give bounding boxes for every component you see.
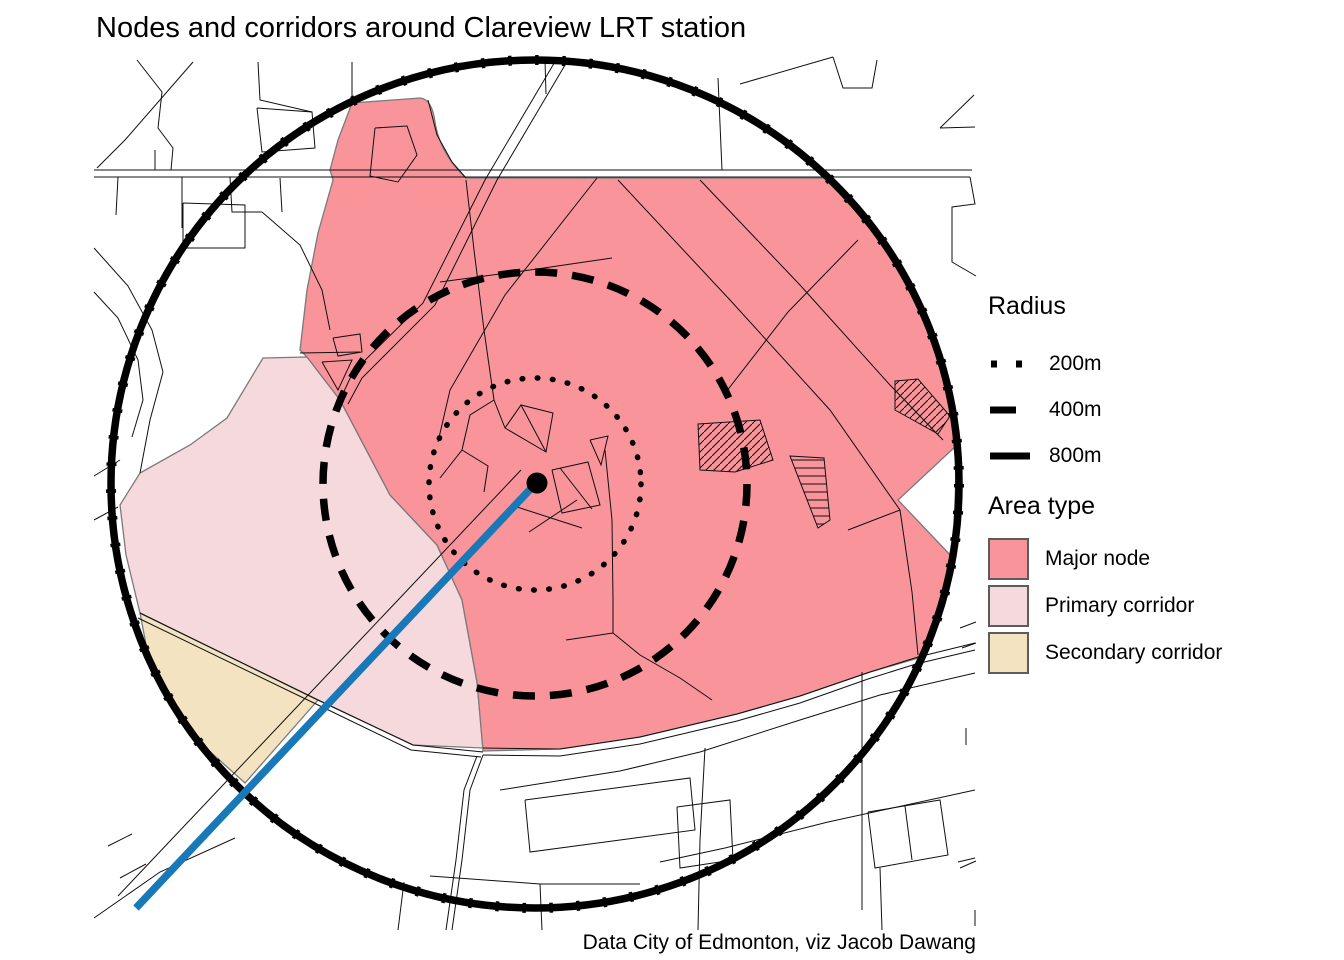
data-credit-caption: Data City of Edmonton, viz Jacob Dawang (583, 931, 976, 955)
legend-label-major-node: Major node (1045, 547, 1150, 571)
dashed-line-icon (988, 404, 1034, 416)
legend-label-800m: 800m (1049, 444, 1102, 468)
legend-label-400m: 400m (1049, 398, 1102, 422)
map-canvas (0, 0, 1344, 960)
page-title: Nodes and corridors around Clareview LRT… (96, 12, 746, 45)
legend-label-200m: 200m (1049, 352, 1102, 376)
dotted-line-icon (988, 358, 1034, 370)
legend-radius: Radius 200m 400m 800m (988, 292, 1102, 479)
legend-item-400m: 400m (988, 387, 1102, 433)
legend-radius-title: Radius (988, 292, 1102, 321)
legend-item-800m: 800m (988, 433, 1102, 479)
station-marker (527, 473, 548, 494)
legend-item-secondary-corridor: Secondary corridor (988, 629, 1222, 676)
legend-item-200m: 200m (988, 341, 1102, 387)
major-node-swatch (988, 538, 1029, 580)
legend-area-title: Area type (988, 492, 1222, 521)
legend-label-secondary-corridor: Secondary corridor (1045, 641, 1222, 665)
legend-item-primary-corridor: Primary corridor (988, 582, 1222, 629)
legend-label-primary-corridor: Primary corridor (1045, 594, 1194, 618)
secondary-corridor-swatch (988, 632, 1029, 674)
primary-corridor-swatch (988, 585, 1029, 627)
solid-line-icon (988, 450, 1034, 462)
legend-item-major-node: Major node (988, 535, 1222, 582)
legend-area-type: Area type Major node Primary corridor Se… (988, 492, 1222, 676)
